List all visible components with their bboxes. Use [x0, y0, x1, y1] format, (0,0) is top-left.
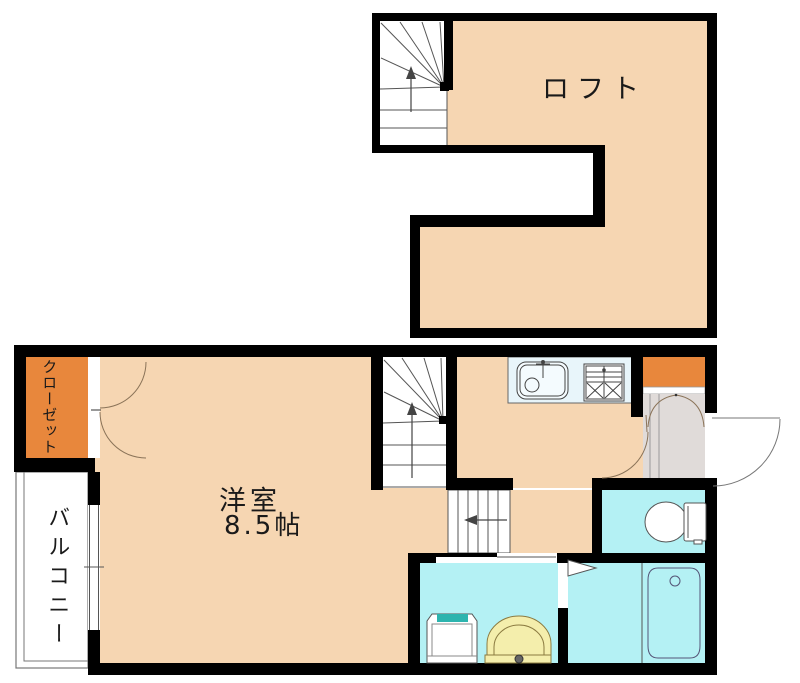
gas-stove-icon	[584, 364, 624, 401]
closet-label: クローゼット	[40, 359, 57, 461]
balcony-label: バルコニー	[44, 506, 69, 666]
loft-stair-area	[380, 21, 447, 145]
bathroom	[568, 563, 705, 663]
entrance-area	[643, 394, 705, 478]
room-size-label: 8.5帖	[224, 512, 303, 542]
floor-plan-drawing	[0, 0, 800, 683]
stair-pivot	[439, 416, 447, 424]
kitchen-sink-icon	[517, 361, 568, 400]
bath-door-opening	[558, 563, 568, 608]
loft-floor	[420, 21, 707, 328]
entrance-door-icon	[712, 418, 780, 486]
lower-stair-flight	[448, 490, 510, 553]
loft-room-label: ロフト	[542, 74, 647, 105]
loft-plan	[372, 13, 717, 338]
shoe-cabinet	[643, 357, 705, 387]
main-floor-plan	[14, 345, 780, 675]
closet-door-opening	[88, 357, 100, 458]
washing-machine-pan-icon	[427, 614, 477, 663]
floor-plan-canvas: ロフト 洋室 8.5帖 クローゼット バルコニー	[0, 0, 800, 683]
shoe-cabinet-counter	[643, 387, 705, 394]
toilet-icon	[645, 502, 706, 544]
